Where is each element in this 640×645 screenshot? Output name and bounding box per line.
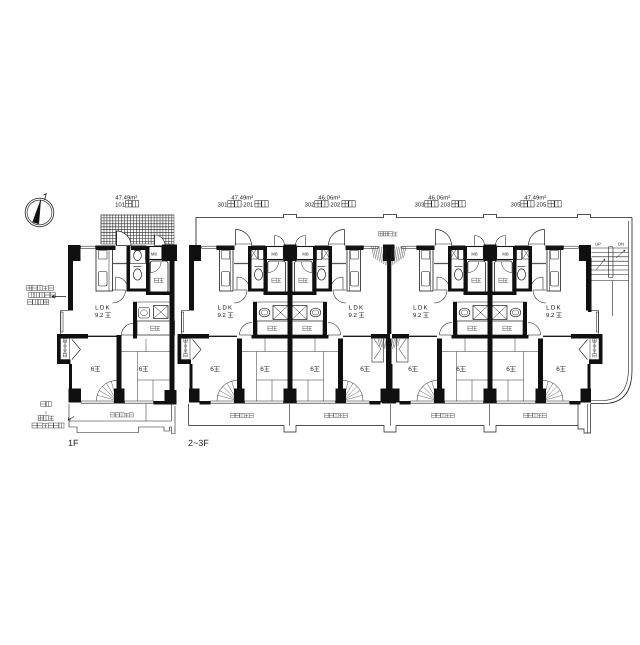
svg-text:9.2: 9.2	[95, 312, 104, 319]
svg-text:²: ²	[338, 195, 340, 202]
svg-text:LDK: LDK	[95, 305, 111, 312]
svg-text:LDK: LDK	[413, 305, 429, 312]
svg-text:101: 101	[115, 202, 126, 209]
svg-text:6: 6	[506, 366, 510, 373]
svg-text:302: 302	[305, 202, 316, 209]
svg-text:9.2: 9.2	[349, 312, 358, 319]
svg-text:303: 303	[415, 202, 426, 209]
svg-text:LDK: LDK	[218, 305, 234, 312]
svg-text:DN: DN	[618, 242, 624, 247]
svg-text:·205: ·205	[534, 202, 547, 209]
svg-text:6: 6	[360, 366, 364, 373]
svg-text:MB: MB	[271, 252, 277, 257]
svg-text:6: 6	[210, 366, 214, 373]
svg-text:MB: MB	[502, 252, 508, 257]
svg-text:2~3F: 2~3F	[188, 438, 209, 448]
svg-text:6: 6	[91, 366, 95, 373]
svg-text:UP: UP	[595, 242, 601, 247]
svg-text:LDK: LDK	[349, 305, 365, 312]
svg-text:6: 6	[139, 366, 143, 373]
svg-text:·203: ·203	[438, 202, 451, 209]
svg-text:LDK: LDK	[546, 305, 562, 312]
svg-text:²: ²	[251, 195, 253, 202]
svg-text:6: 6	[408, 366, 412, 373]
svg-text:6: 6	[456, 366, 460, 373]
svg-text:·201: ·201	[241, 202, 254, 209]
svg-text:9.2: 9.2	[218, 312, 227, 319]
svg-text:6: 6	[310, 366, 314, 373]
svg-text:·202: ·202	[328, 202, 341, 209]
svg-text:²: ²	[448, 195, 450, 202]
svg-text:301: 301	[218, 202, 229, 209]
svg-text:MB: MB	[471, 252, 477, 257]
svg-text:6: 6	[260, 366, 264, 373]
svg-text:MB: MB	[151, 252, 157, 257]
svg-text:²: ²	[544, 195, 546, 202]
svg-text:305: 305	[511, 202, 522, 209]
svg-text:9.2: 9.2	[546, 312, 555, 319]
svg-text:↓: ↓	[45, 410, 48, 416]
svg-text:9.2: 9.2	[413, 312, 422, 319]
svg-text:6: 6	[556, 366, 560, 373]
svg-text:MB: MB	[302, 252, 308, 257]
svg-text:1F: 1F	[68, 438, 79, 448]
